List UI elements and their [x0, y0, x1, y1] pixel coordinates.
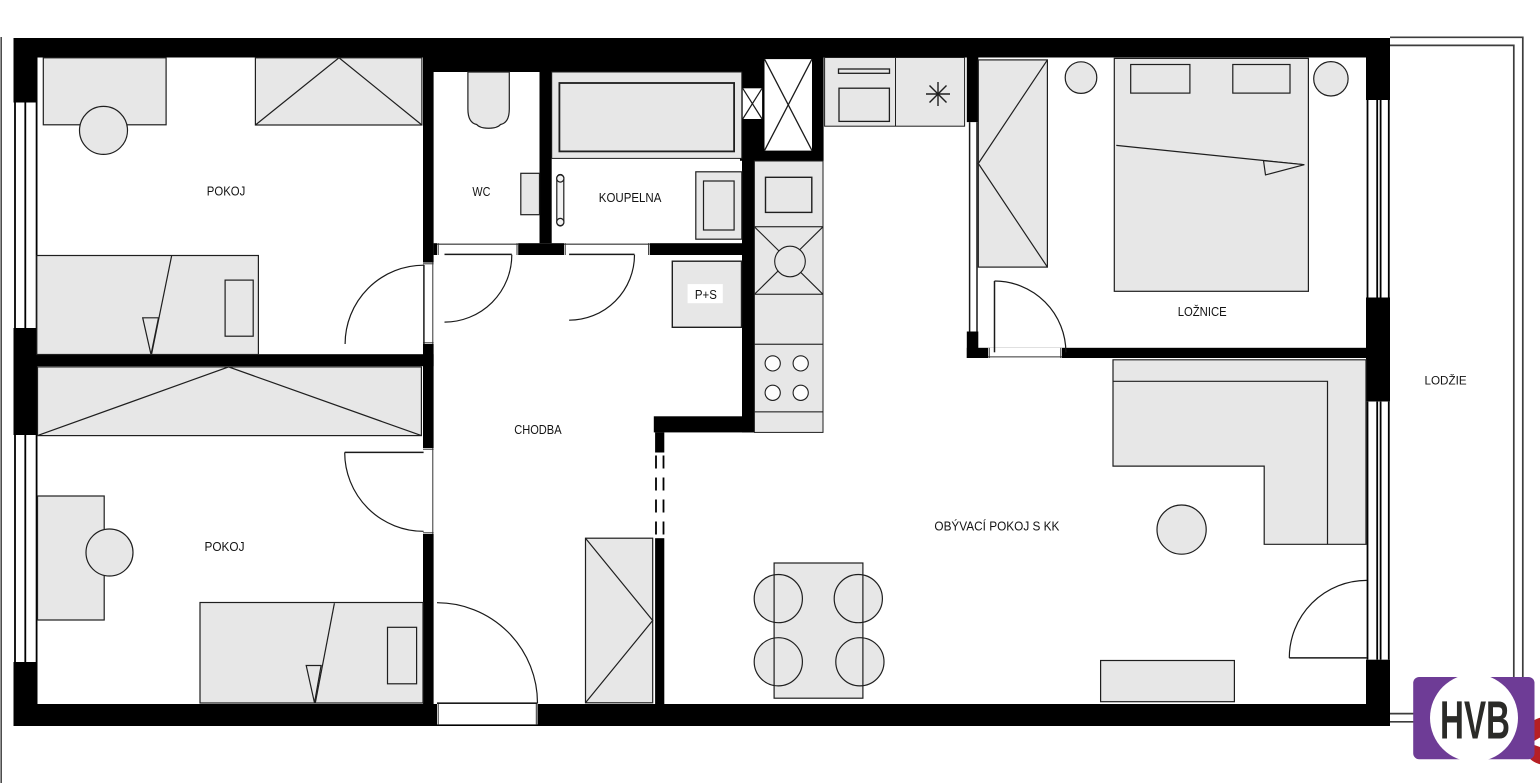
svg-text:POKOJ: POKOJ	[207, 185, 246, 199]
svg-text:LOŽNICE: LOŽNICE	[1178, 304, 1227, 319]
svg-text:KOUPELNA: KOUPELNA	[599, 191, 662, 205]
svg-text:CHODBA: CHODBA	[514, 423, 562, 437]
svg-text:HVB: HVB	[1440, 690, 1510, 750]
svg-text:WC: WC	[472, 185, 490, 199]
svg-text:P+S: P+S	[695, 288, 717, 302]
svg-text:LODŽIE: LODŽIE	[1425, 374, 1467, 387]
svg-text:POKOJ: POKOJ	[205, 540, 245, 554]
svg-text:OBÝVACÍ POKOJ S KK: OBÝVACÍ POKOJ S KK	[934, 518, 1060, 533]
